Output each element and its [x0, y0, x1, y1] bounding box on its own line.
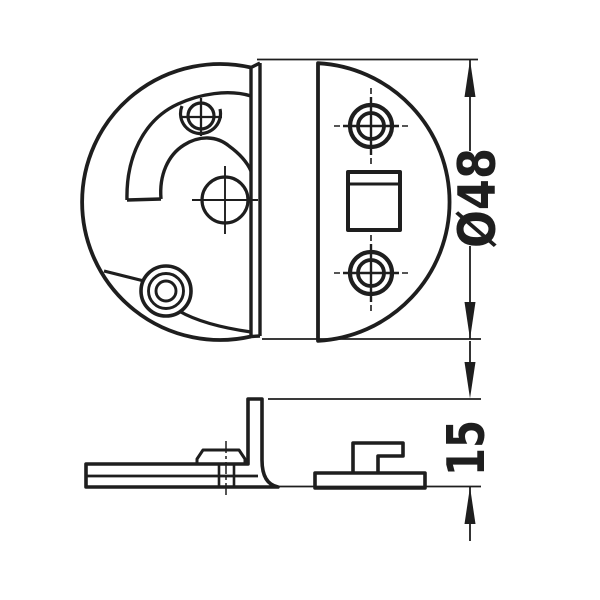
top-view-base-plate — [82, 63, 260, 340]
technical-drawing-page: Ø48 15 — [0, 0, 600, 600]
plate-notch-line — [104, 271, 144, 281]
guide-slot-end-cap — [127, 199, 161, 200]
rivet-boss — [197, 450, 245, 464]
diameter-dimension-label: Ø48 — [448, 148, 508, 248]
top-view-cover-plate — [318, 63, 450, 341]
side-view-hook-plate — [315, 443, 425, 488]
bushing-inner-ring — [156, 281, 176, 301]
plate-step-edge — [179, 311, 251, 332]
dimension-height: 15 — [268, 341, 497, 541]
square-opening — [348, 172, 400, 230]
side-view-angle-bracket — [86, 399, 278, 496]
diameter-arrow-down — [465, 302, 476, 339]
lower-screw-cross — [343, 244, 399, 302]
flap-hinge-technical-drawing: Ø48 15 — [0, 0, 600, 600]
cover-plate-outline — [318, 63, 450, 341]
guide-screw-cross — [180, 98, 222, 136]
dimension-diameter: Ø48 — [257, 60, 508, 340]
angle-bracket-outline — [86, 399, 278, 487]
upper-screw-cross — [343, 97, 399, 155]
hook-tab — [353, 443, 403, 473]
height-dimension-label: 15 — [437, 420, 497, 476]
height-arrow-down — [465, 362, 476, 399]
diameter-arrow-up — [465, 60, 476, 97]
pivot-hole-crosshair — [192, 166, 258, 234]
bushing-middle-ring — [149, 274, 184, 309]
height-arrow-up — [465, 487, 476, 524]
